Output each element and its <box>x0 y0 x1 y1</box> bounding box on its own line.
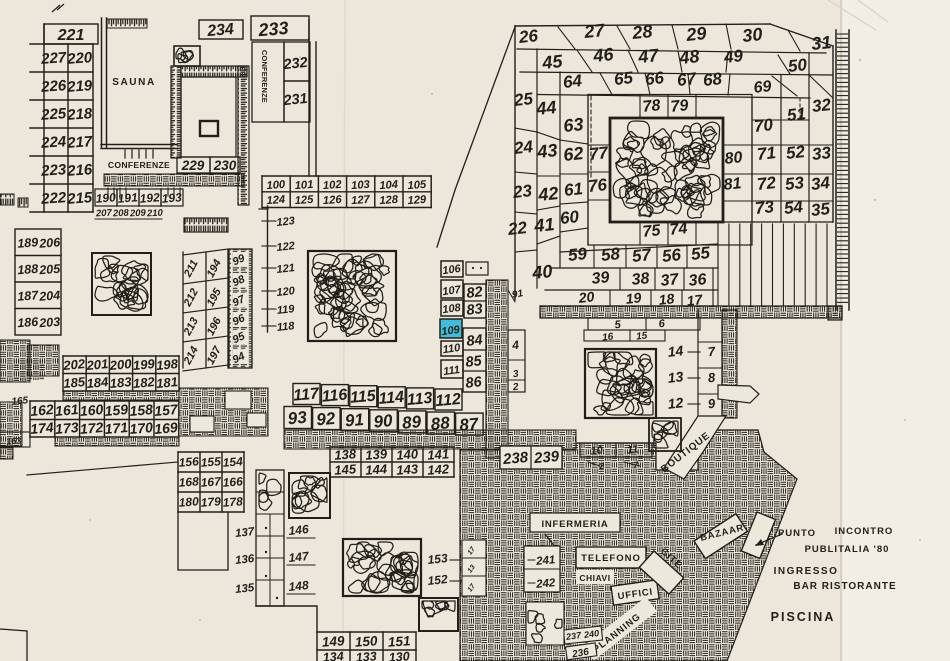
svg-text:188: 188 <box>17 262 39 277</box>
svg-text:28: 28 <box>630 21 653 43</box>
svg-text:224: 224 <box>40 133 68 152</box>
svg-text:90: 90 <box>373 411 394 432</box>
svg-text:46: 46 <box>591 44 615 66</box>
svg-text:206: 206 <box>38 235 62 251</box>
svg-text:136: 136 <box>235 553 256 567</box>
svg-text:200: 200 <box>108 356 133 373</box>
svg-text:91: 91 <box>344 410 365 431</box>
svg-text:155: 155 <box>200 454 221 469</box>
svg-text:242: 242 <box>535 577 557 591</box>
svg-text:36: 36 <box>688 271 708 290</box>
svg-text:162: 162 <box>30 401 55 419</box>
svg-text:120: 120 <box>276 285 296 299</box>
svg-text:217: 217 <box>66 133 94 152</box>
svg-text:229: 229 <box>181 158 205 173</box>
svg-text:80: 80 <box>724 149 744 168</box>
svg-text:61: 61 <box>563 179 584 200</box>
svg-text:154: 154 <box>222 454 243 469</box>
svg-text:19: 19 <box>625 289 642 307</box>
svg-text:221: 221 <box>57 27 85 44</box>
svg-text:26: 26 <box>517 26 539 47</box>
svg-text:184: 184 <box>86 374 110 391</box>
svg-text:112: 112 <box>435 391 462 410</box>
svg-text:182: 182 <box>132 374 156 391</box>
svg-text:38: 38 <box>631 270 651 289</box>
svg-text:119: 119 <box>276 303 296 317</box>
svg-text:64: 64 <box>562 71 583 92</box>
svg-text:151: 151 <box>387 633 411 650</box>
svg-text:129: 129 <box>407 194 427 207</box>
svg-text:160: 160 <box>79 401 104 419</box>
svg-text:76: 76 <box>587 175 608 196</box>
svg-text:137: 137 <box>235 526 256 540</box>
svg-text:104: 104 <box>379 179 399 192</box>
svg-text:60: 60 <box>559 207 580 228</box>
svg-text:73: 73 <box>754 197 775 218</box>
svg-text:CONFERENZE: CONFERENZE <box>260 50 269 103</box>
svg-text:166: 166 <box>222 474 243 489</box>
svg-text:143: 143 <box>396 461 419 478</box>
svg-text:189: 189 <box>17 235 39 250</box>
svg-text:215: 215 <box>66 189 94 208</box>
svg-text:12: 12 <box>667 394 684 412</box>
svg-text:INCONTRO: INCONTRO <box>835 526 894 537</box>
svg-text:82: 82 <box>466 284 484 302</box>
svg-text:29: 29 <box>684 23 707 45</box>
svg-text:83: 83 <box>466 301 484 319</box>
svg-text:34: 34 <box>810 173 831 194</box>
svg-text:174: 174 <box>30 419 55 437</box>
svg-text:202: 202 <box>62 356 87 373</box>
svg-text:31: 31 <box>810 32 832 54</box>
svg-text:125: 125 <box>294 194 314 207</box>
svg-text:14: 14 <box>667 342 684 360</box>
svg-text:37: 37 <box>660 271 681 290</box>
svg-text:153: 153 <box>427 551 449 567</box>
svg-text:198: 198 <box>156 356 180 373</box>
svg-text:239: 239 <box>532 448 560 467</box>
svg-text:CONFERENZE: CONFERENZE <box>108 160 170 170</box>
svg-text:185: 185 <box>63 374 87 391</box>
svg-text:234: 234 <box>206 21 235 40</box>
svg-text:53: 53 <box>784 173 805 194</box>
svg-text:78: 78 <box>642 97 662 116</box>
svg-text:210: 210 <box>146 208 164 220</box>
svg-text:25: 25 <box>512 89 534 110</box>
svg-text:128: 128 <box>379 194 399 207</box>
svg-text:145: 145 <box>334 461 357 478</box>
svg-text:PUNTO: PUNTO <box>778 528 816 539</box>
svg-text:SAUNA: SAUNA <box>112 77 156 88</box>
svg-text:133: 133 <box>355 649 377 661</box>
svg-text:50: 50 <box>787 55 808 76</box>
svg-text:22: 22 <box>506 218 528 239</box>
svg-text:233: 233 <box>257 18 290 41</box>
svg-text:179: 179 <box>200 494 221 509</box>
svg-text:20: 20 <box>577 288 595 306</box>
svg-text:170: 170 <box>129 419 154 437</box>
svg-text:52: 52 <box>785 142 806 163</box>
svg-text:CHIAVI: CHIAVI <box>579 573 610 583</box>
svg-text:115: 115 <box>349 388 377 407</box>
svg-text:72: 72 <box>756 173 777 194</box>
svg-text:130: 130 <box>388 649 410 661</box>
svg-text:43: 43 <box>535 140 558 162</box>
svg-text:49: 49 <box>722 46 744 67</box>
svg-text:TELEFONO: TELEFONO <box>581 553 641 564</box>
svg-text:216: 216 <box>66 161 94 180</box>
svg-text:62: 62 <box>562 143 584 165</box>
svg-text:146: 146 <box>288 522 310 538</box>
svg-text:15: 15 <box>636 330 649 342</box>
svg-text:139: 139 <box>365 446 388 463</box>
svg-text:158: 158 <box>129 401 154 419</box>
svg-text:220: 220 <box>66 49 94 68</box>
svg-text:30: 30 <box>741 24 763 46</box>
svg-text:118: 118 <box>276 320 296 334</box>
svg-text:75: 75 <box>642 222 663 241</box>
svg-text:92: 92 <box>316 409 337 430</box>
svg-text:27: 27 <box>582 20 606 42</box>
svg-text:222: 222 <box>40 189 68 208</box>
svg-text:54: 54 <box>783 197 804 218</box>
svg-text:116: 116 <box>321 387 348 406</box>
svg-text:100: 100 <box>266 179 286 192</box>
svg-text:150: 150 <box>354 633 378 650</box>
svg-text:51: 51 <box>786 104 807 125</box>
svg-text:152: 152 <box>427 572 449 588</box>
svg-text:147: 147 <box>288 549 311 565</box>
svg-text:PUBLITALIA '80: PUBLITALIA '80 <box>805 544 890 555</box>
svg-text:140: 140 <box>396 446 419 463</box>
svg-text:225: 225 <box>40 105 68 124</box>
svg-text:58: 58 <box>600 244 621 265</box>
svg-text:168: 168 <box>178 474 199 489</box>
svg-text:227: 227 <box>40 49 68 68</box>
svg-text:169: 169 <box>154 419 179 437</box>
svg-text:70: 70 <box>753 115 774 136</box>
svg-text:148: 148 <box>288 578 310 594</box>
svg-text:16: 16 <box>602 331 615 343</box>
svg-text:68: 68 <box>702 69 723 90</box>
svg-text:238: 238 <box>501 449 529 468</box>
svg-text:INFERMERIA: INFERMERIA <box>541 519 608 530</box>
svg-text:PISCINA: PISCINA <box>771 610 836 624</box>
svg-text:39: 39 <box>591 269 611 288</box>
svg-text:66: 66 <box>644 68 665 89</box>
svg-text:171: 171 <box>104 419 129 437</box>
svg-text:204: 204 <box>38 288 61 303</box>
svg-text:86: 86 <box>465 374 484 392</box>
svg-text:138: 138 <box>334 446 357 463</box>
svg-text:41: 41 <box>532 214 555 236</box>
svg-text:123: 123 <box>276 215 296 229</box>
svg-text:181: 181 <box>156 374 179 391</box>
svg-text:63: 63 <box>562 114 584 136</box>
svg-text:226: 226 <box>40 77 68 96</box>
svg-text:69: 69 <box>753 78 773 97</box>
svg-text:219: 219 <box>66 77 94 96</box>
svg-text:191: 191 <box>117 190 138 205</box>
svg-text:110: 110 <box>442 342 462 356</box>
svg-text:117: 117 <box>293 385 321 404</box>
svg-text:159: 159 <box>104 401 129 419</box>
svg-text:40: 40 <box>530 261 553 283</box>
svg-text:223: 223 <box>40 161 68 180</box>
svg-text:199: 199 <box>132 356 156 373</box>
svg-text:102: 102 <box>323 179 343 192</box>
svg-text:241: 241 <box>535 554 556 568</box>
svg-text:67: 67 <box>676 69 698 90</box>
svg-text:126: 126 <box>323 194 343 207</box>
svg-text:18: 18 <box>658 290 675 308</box>
svg-text:149: 149 <box>321 633 345 650</box>
svg-text:84: 84 <box>466 332 484 350</box>
svg-text:163: 163 <box>6 435 22 446</box>
svg-text:141: 141 <box>427 446 450 462</box>
svg-text:180: 180 <box>178 494 199 509</box>
svg-text:173: 173 <box>54 419 79 437</box>
svg-text:157: 157 <box>154 401 180 419</box>
svg-text:218: 218 <box>66 105 94 124</box>
svg-text:161: 161 <box>54 401 79 419</box>
svg-text:13: 13 <box>667 368 684 386</box>
svg-text:113: 113 <box>406 390 433 409</box>
svg-text:183: 183 <box>109 374 133 391</box>
svg-text:101: 101 <box>294 179 313 192</box>
svg-text:165: 165 <box>11 395 29 407</box>
svg-text:71: 71 <box>756 143 777 164</box>
svg-text:32: 32 <box>811 95 832 116</box>
svg-text:178: 178 <box>222 494 243 509</box>
svg-text:103: 103 <box>351 179 371 192</box>
svg-text:231: 231 <box>282 91 309 110</box>
svg-text:172: 172 <box>79 419 104 437</box>
svg-text:201: 201 <box>85 356 109 373</box>
svg-text:59: 59 <box>567 244 588 265</box>
svg-text:121: 121 <box>276 262 296 276</box>
svg-text:85: 85 <box>465 353 484 371</box>
svg-text:142: 142 <box>427 461 450 478</box>
svg-text:122: 122 <box>276 240 296 254</box>
svg-text:57: 57 <box>631 245 653 266</box>
svg-text:44: 44 <box>534 97 557 119</box>
svg-text:192: 192 <box>139 190 160 205</box>
svg-text:156: 156 <box>178 454 199 469</box>
svg-text:47: 47 <box>636 45 660 67</box>
svg-text:79: 79 <box>670 97 690 116</box>
svg-text:186: 186 <box>17 315 40 330</box>
svg-text:35: 35 <box>810 199 831 220</box>
svg-text:81: 81 <box>723 175 743 194</box>
svg-text:187: 187 <box>17 288 40 303</box>
svg-text:232: 232 <box>282 55 309 74</box>
svg-text:65: 65 <box>613 68 634 89</box>
svg-text:135: 135 <box>235 582 256 596</box>
svg-text:BAR RISTORANTE: BAR RISTORANTE <box>793 581 896 592</box>
svg-text:105: 105 <box>407 179 427 192</box>
svg-text:209: 209 <box>129 208 147 220</box>
svg-text:144: 144 <box>365 461 388 478</box>
svg-text:193: 193 <box>161 190 182 205</box>
svg-text:205: 205 <box>38 262 62 278</box>
svg-text:207: 207 <box>95 208 113 220</box>
svg-text:124: 124 <box>266 194 286 207</box>
svg-text:33: 33 <box>811 143 832 164</box>
svg-text:111: 111 <box>442 364 460 378</box>
svg-text:24: 24 <box>512 137 534 158</box>
svg-text:77: 77 <box>588 143 610 164</box>
svg-text:93: 93 <box>287 408 308 429</box>
svg-text:230: 230 <box>213 158 237 173</box>
svg-text:203: 203 <box>38 315 61 330</box>
svg-text:INGRESSO: INGRESSO <box>774 566 839 577</box>
svg-text:45: 45 <box>540 51 564 73</box>
svg-text:48: 48 <box>677 46 700 68</box>
svg-text:55: 55 <box>690 243 711 264</box>
svg-text:208: 208 <box>112 208 130 220</box>
svg-text:127: 127 <box>351 194 371 207</box>
svg-text:167: 167 <box>200 474 222 489</box>
svg-text:114: 114 <box>378 389 405 408</box>
svg-text:42: 42 <box>536 183 559 205</box>
svg-text:190: 190 <box>95 190 116 205</box>
svg-text:56: 56 <box>661 245 682 266</box>
svg-text:134: 134 <box>322 649 344 661</box>
svg-text:23: 23 <box>511 181 533 202</box>
